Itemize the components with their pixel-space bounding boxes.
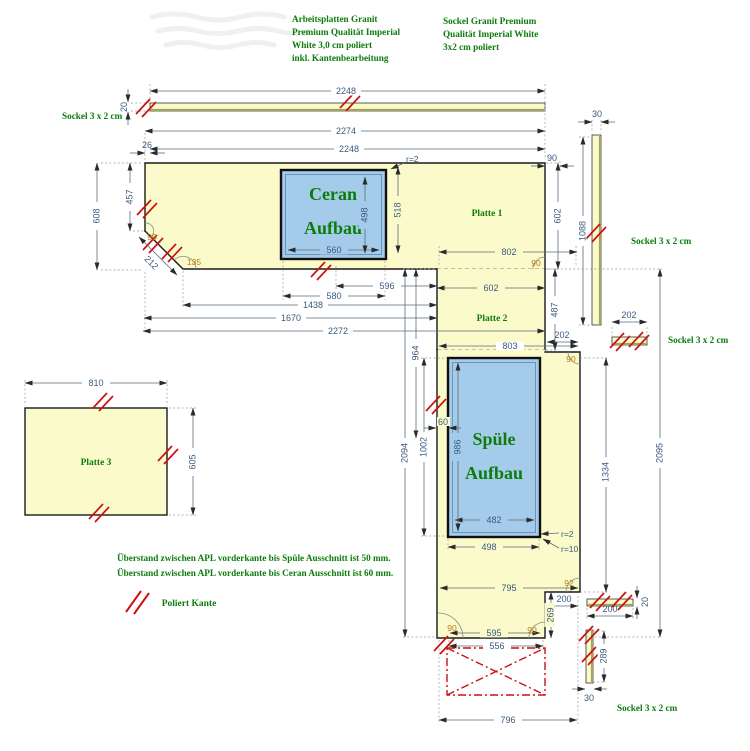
svg-text:580: 580 [326, 291, 341, 301]
svg-text:795: 795 [501, 583, 516, 593]
material-note-line3: White 3,0 cm poliert [292, 40, 373, 50]
dim-plate1-left-offset: 26 [130, 140, 165, 153]
svg-text:30: 30 [584, 693, 594, 703]
svg-text:602: 602 [483, 283, 498, 293]
dim-sockel-right-length: 1088 [577, 137, 588, 325]
svg-text:20: 20 [640, 597, 650, 607]
platte-2-shape [437, 269, 545, 350]
dim-1670: 1670 [144, 313, 437, 323]
svg-text:803: 803 [502, 341, 517, 351]
svg-text:2095: 2095 [655, 443, 665, 463]
sockel-note-line2: Qualität Imperial White [443, 29, 538, 39]
svg-text:26: 26 [142, 140, 152, 150]
dim-1438: 1438 [183, 300, 437, 310]
sockel-note-line3: 3x2 cm poliert [443, 42, 500, 52]
dim-lower-total-2095: 2095 [654, 269, 665, 637]
dim-plate1-left-front: 457 [124, 163, 135, 231]
sink-radius-edge-label: r=10 [561, 544, 579, 554]
svg-text:608: 608 [92, 208, 102, 223]
svg-text:2248: 2248 [336, 86, 356, 96]
svg-text:269: 269 [546, 607, 556, 622]
svg-text:30: 30 [592, 109, 602, 119]
svg-text:964: 964 [411, 345, 421, 360]
svg-text:1438: 1438 [303, 300, 323, 310]
dim-plate1-total-width: 2274 [145, 126, 545, 136]
svg-text:556: 556 [489, 641, 504, 651]
dim-sockel-mid-length: 202 [612, 310, 647, 322]
overhang-note-2: Überstand zwischen APL vorderkante bis C… [117, 568, 393, 578]
svg-text:498: 498 [481, 542, 496, 552]
svg-text:487: 487 [550, 302, 560, 317]
svg-text:2272: 2272 [328, 326, 348, 336]
cad-drawing-page: Ceran Aufbau Spüle Aufbau [0, 0, 750, 751]
dim-gap-596: 596 [336, 281, 437, 291]
platte1-label: Platte 1 [472, 209, 503, 219]
svg-text:602: 602 [553, 208, 563, 223]
sockel-label-top-left: Sockel 3 x 2 cm [62, 111, 123, 121]
svg-text:60: 60 [438, 417, 448, 427]
svg-text:90: 90 [547, 153, 557, 163]
dim-bottom-556: 556 [449, 641, 543, 651]
sockel-label-mid-right: Sockel 3 x 2 cm [668, 335, 729, 345]
svg-text:595: 595 [486, 628, 501, 638]
sink-radius-corner-label: r=2 [561, 529, 574, 539]
svg-text:482: 482 [486, 515, 501, 525]
polished-edge-legend: Poliert Kante [126, 591, 216, 614]
svg-text:2248: 2248 [339, 144, 359, 154]
dim-sockel-right-width: 30 [578, 109, 615, 122]
svg-text:1670: 1670 [281, 313, 301, 323]
svg-text:596: 596 [379, 281, 394, 291]
material-note: Arbeitsplatten Granit Premium Qualität I… [292, 14, 400, 63]
dim-plate1-left-depth: 608 [91, 163, 102, 270]
material-note-line1: Arbeitsplatten Granit [292, 14, 378, 24]
svg-text:2094: 2094 [400, 443, 410, 463]
dim-notch-depth: 269 [545, 592, 556, 638]
kitchen-countertop-drawing: Ceran Aufbau Spüle Aufbau [0, 0, 750, 751]
svg-text:200: 200 [602, 604, 617, 614]
dim-step-width: 202 [547, 330, 578, 342]
svg-text:200: 200 [556, 594, 571, 604]
chamfer-angle-label: 135 [187, 257, 201, 267]
excluded-area-box [447, 648, 545, 695]
spuele-label-line2: Aufbau [465, 463, 523, 483]
dim-bottom-796: 796 [439, 715, 577, 725]
dim-964: 964 [410, 269, 421, 438]
overhang-notes: Überstand zwischen APL vorderkante bis S… [117, 553, 393, 578]
svg-text:560: 560 [326, 245, 341, 255]
svg-text:605: 605 [188, 454, 198, 469]
notch-angle-label: 92 [564, 578, 574, 588]
ceran-label-line1: Ceran [309, 184, 357, 204]
sockel-label-bottom-right: Sockel 3 x 2 cm [617, 703, 678, 713]
plate2-corner-angle-label: 90 [531, 258, 541, 268]
dim-lower-right-1334: 1334 [600, 358, 611, 592]
platte2-label: Platte 2 [477, 314, 508, 324]
dim-sink-cutout-height-outer: 1002 [418, 358, 429, 536]
dim-plate1-right-depth: 602 [552, 163, 563, 269]
watermark [152, 14, 308, 48]
chamfer-angle-top-label: 90 [147, 232, 157, 242]
dim-sockel-bottom-height: 20 [637, 586, 650, 619]
ceran-radius-label: r=2 [406, 154, 419, 164]
sockel-note-line1: Sockel Granit Premium [443, 16, 537, 26]
ceran-label-line2: Aufbau [304, 218, 362, 238]
sockel-label-right: Sockel 3 x 2 cm [631, 236, 692, 246]
dim-sockel-bv-length: 289 [598, 631, 609, 682]
platte3-label: Platte 3 [81, 458, 112, 468]
svg-text:1002: 1002 [419, 437, 429, 457]
svg-text:1088: 1088 [578, 221, 588, 241]
dim-sockel-top-length: 2248 [150, 86, 545, 96]
bottom-mid-angle-label: 90 [527, 625, 537, 635]
svg-text:212: 212 [143, 254, 161, 272]
svg-text:796: 796 [500, 715, 515, 725]
overhang-note-1: Überstand zwischen APL vorderkante bis S… [117, 553, 391, 563]
polished-edge-legend-label: Poliert Kante [162, 599, 217, 609]
dim-lower-total-2094: 2094 [399, 269, 410, 637]
svg-text:457: 457 [125, 189, 135, 204]
dim-ceran-width-outer: 580 [283, 291, 385, 301]
svg-text:289: 289 [599, 648, 609, 663]
svg-text:1334: 1334 [601, 462, 611, 482]
svg-text:202: 202 [554, 330, 569, 340]
sockel-note: Sockel Granit Premium Qualität Imperial … [443, 16, 538, 52]
svg-text:802: 802 [501, 247, 516, 257]
material-note-line2: Premium Qualität Imperial [292, 27, 400, 37]
svg-text:986: 986 [453, 439, 463, 454]
svg-text:810: 810 [88, 378, 103, 388]
svg-text:202: 202 [621, 310, 636, 320]
lower-top-corner-angle-label: 90 [566, 354, 576, 364]
svg-text:518: 518 [393, 202, 403, 217]
svg-text:498: 498 [360, 207, 370, 222]
bottom-left-angle-label: 90 [447, 623, 457, 633]
dim-sockel-bv-width: 30 [572, 689, 607, 703]
material-note-line4: inkl. Kantenbearbeitung [292, 53, 389, 63]
svg-text:2274: 2274 [336, 126, 356, 136]
spuele-label-line1: Spüle [472, 429, 515, 449]
dim-plate3-depth: 605 [187, 408, 198, 515]
dim-plate1-width: 2248 [150, 144, 545, 154]
dim-plate3-width: 810 [25, 378, 167, 388]
